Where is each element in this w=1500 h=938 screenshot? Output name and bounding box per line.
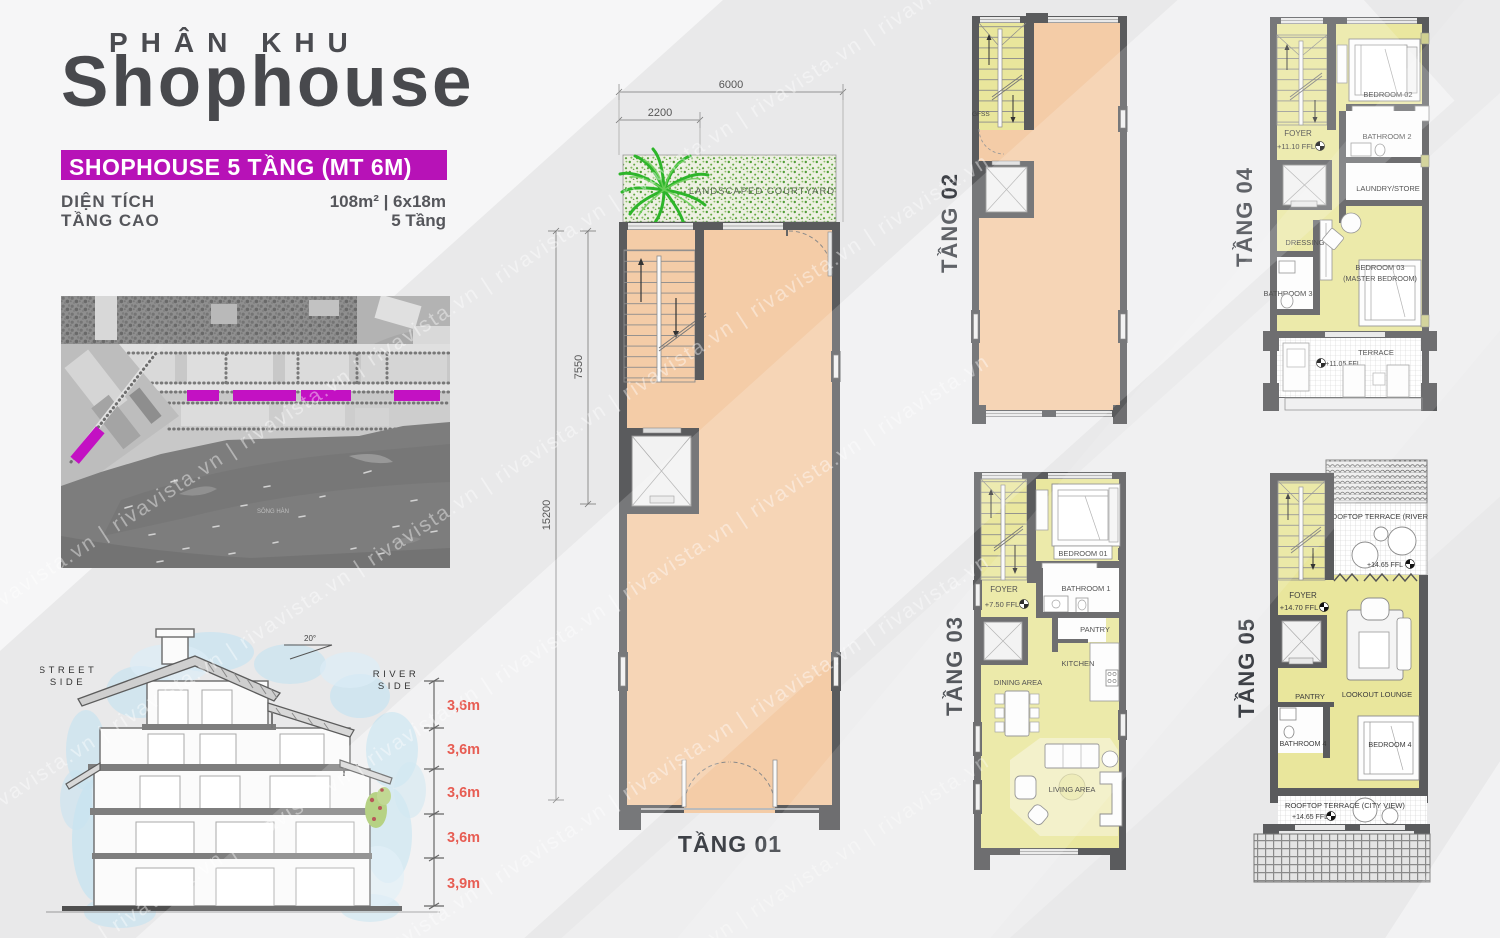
- svg-text:SIDE: SIDE: [378, 681, 414, 692]
- svg-text:LOOKOUT LOUNGE: LOOKOUT LOUNGE: [1342, 690, 1412, 699]
- svg-text:SIDE: SIDE: [50, 677, 86, 688]
- svg-text:BATHROOM 4: BATHROOM 4: [1280, 739, 1327, 748]
- svg-text:15200: 15200: [541, 500, 553, 531]
- svg-text:SÔNG HÀN: SÔNG HÀN: [257, 508, 289, 515]
- svg-text:PANTRY: PANTRY: [1295, 692, 1325, 701]
- svg-text:+14.65 FFL: +14.65 FFL: [1292, 814, 1328, 821]
- svg-text:+14.70 FFL: +14.70 FFL: [1280, 603, 1319, 612]
- svg-text:BEDROOM 4: BEDROOM 4: [1368, 740, 1411, 749]
- svg-text:6000: 6000: [719, 79, 743, 91]
- svg-text:+14.65 FFL: +14.65 FFL: [1367, 562, 1403, 569]
- svg-text:FOYER: FOYER: [1289, 591, 1317, 600]
- svg-text:STREET: STREET: [40, 665, 97, 676]
- svg-text:7550: 7550: [573, 355, 585, 379]
- svg-text:RIVER: RIVER: [373, 669, 420, 680]
- svg-text:20°: 20°: [304, 634, 316, 643]
- svg-text:GFSS: GFSS: [972, 111, 990, 118]
- svg-text:2200: 2200: [648, 107, 672, 119]
- svg-text:LANDSCAPED COURTYARD: LANDSCAPED COURTYARD: [689, 186, 835, 197]
- svg-text:ROOFTOP TERRACE (CITY VIEW): ROOFTOP TERRACE (CITY VIEW): [1285, 801, 1405, 810]
